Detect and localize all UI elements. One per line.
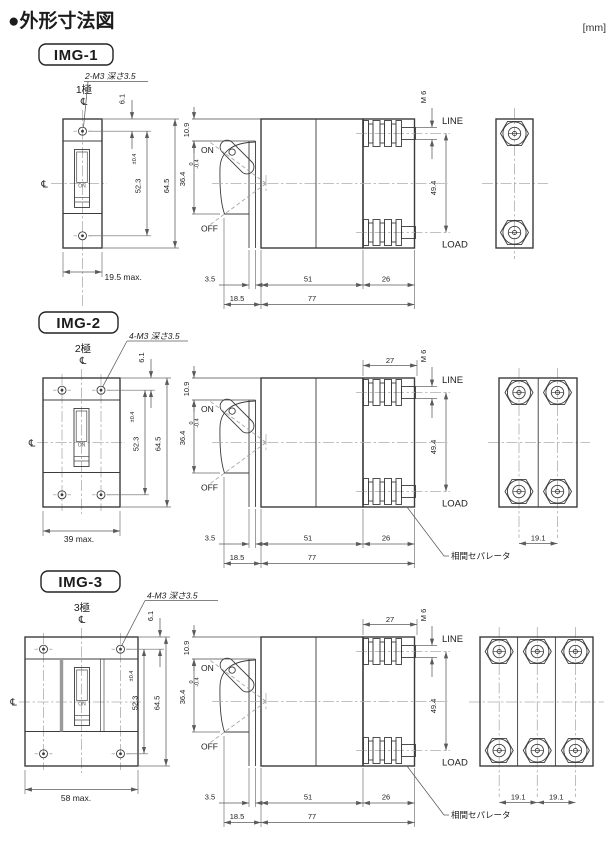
dim-escutcheon-depth: 3.5 — [205, 793, 215, 802]
front-view: ℄ ON 6.1 ±0.4 52.3 — [9, 611, 170, 803]
pole-separator-line — [60, 659, 63, 732]
line-terminal-label: LINE — [442, 634, 463, 645]
dim-window-tol-lower: -0.4 — [195, 677, 201, 686]
on-label: ON — [201, 663, 214, 673]
dim-body-depth: 51 — [304, 793, 312, 802]
centerline-symbol-left: ℄ — [40, 180, 48, 191]
dim-total-depth: 77 — [308, 553, 316, 562]
dim-hole-offset: 6.1 — [146, 611, 155, 621]
toggle-handle-icon — [75, 150, 90, 208]
dim-pitch-tolerance: ±0.4 — [130, 412, 136, 423]
dim-window-tol-lower: -0.4 — [195, 418, 201, 427]
dimension-drawing-page: ●外形寸法図 [mm] IMG-1 1極 ℄ 2-M3 深さ3.5 ℄ ON — [0, 0, 613, 851]
section-img-2: IMG-2 2極 ℄ 4-M3 深さ3.5 ℄ ON — [28, 312, 590, 568]
centerline-symbol-left: ℄ — [28, 439, 36, 450]
off-label: OFF — [201, 224, 218, 234]
section-img-1: IMG-1 1極 ℄ 2-M3 深さ3.5 ℄ ON — [39, 44, 548, 309]
dim-rim-height: 10.9 — [182, 382, 191, 397]
centerline-symbol-top: ℄ — [79, 356, 87, 367]
toggle-on-label: ON — [78, 443, 86, 449]
centerline-symbol-left: ℄ — [9, 698, 17, 709]
load-terminal-label: LOAD — [442, 240, 468, 251]
dim-front-depth: 18.5 — [230, 812, 245, 821]
dim-terminal-screw: M 6 — [419, 609, 428, 622]
thread-note: 2-M3 深さ3.5 — [84, 71, 136, 81]
end-view: 19.1 — [488, 368, 590, 544]
front-view: ℄ ON 6.1 ±0.4 52.3 64.5 39 max. — [28, 352, 171, 544]
dim-pole-pitch-2: 19.1 — [549, 793, 564, 802]
dim-hole-pitch: 52.3 — [134, 179, 143, 194]
section-img-3: IMG-3 3極 ℄ 4-M3 深さ3.5 ℄ ON — [9, 571, 604, 827]
dim-height: 64.5 — [153, 696, 162, 711]
dim-rim-height: 10.9 — [182, 641, 191, 656]
model-badge-label: IMG-3 — [58, 574, 102, 591]
drawing-canvas: ●外形寸法図 [mm] IMG-1 1極 ℄ 2-M3 深さ3.5 ℄ ON — [0, 0, 613, 851]
on-label: ON — [201, 404, 214, 414]
pole-count-label: 1極 — [76, 83, 92, 96]
dim-escutcheon-depth: 3.5 — [205, 275, 215, 284]
dim-hole-offset: 6.1 — [118, 94, 127, 104]
toggle-handle-icon — [75, 668, 90, 726]
dim-terminal-depth: 26 — [382, 275, 390, 284]
separator-note: 相間セパレータ — [451, 810, 511, 820]
line-terminal-label: LINE — [442, 116, 463, 127]
dim-window-tol-lower: -0.4 — [195, 159, 201, 168]
load-terminal-label: LOAD — [442, 499, 468, 510]
dim-pole-pitch-1: 19.1 — [511, 793, 526, 802]
dim-window-height: 36.4 — [178, 690, 187, 705]
off-label: OFF — [201, 483, 218, 493]
model-badge-label: IMG-2 — [56, 315, 100, 332]
off-label: OFF — [201, 742, 218, 752]
dim-hole-pitch: 52.3 — [132, 437, 141, 452]
side-view: 27 10.9 36.4 0 -0.4 ON OFF 3.5 51 26 18.… — [178, 609, 511, 827]
page-title: ●外形寸法図 — [8, 9, 114, 32]
dim-window-height: 36.4 — [178, 431, 187, 446]
pole-count-label: 3極 — [74, 601, 90, 614]
dim-rim-height: 10.9 — [182, 123, 191, 138]
dim-width-max: 39 max. — [64, 534, 94, 544]
separator-note: 相間セパレータ — [451, 551, 511, 561]
model-badge-label: IMG-1 — [54, 47, 98, 64]
dim-pole-pitch: 19.1 — [531, 534, 546, 543]
dim-height: 64.5 — [154, 437, 163, 452]
dim-front-depth: 18.5 — [230, 294, 245, 303]
dim-width-max: 19.5 max. — [105, 272, 142, 282]
toggle-on-label: ON — [78, 702, 86, 708]
centerline-symbol-top: ℄ — [78, 615, 86, 626]
dim-pitch-tolerance: ±0.4 — [129, 671, 135, 682]
dim-body-depth: 51 — [304, 275, 312, 284]
dim-terminal-screw: M 6 — [419, 91, 428, 104]
thread-note: 4-M3 深さ3.5 — [129, 331, 180, 341]
dim-terminal-pitch: 49.4 — [429, 181, 438, 196]
dim-terminal-pitch: 49.4 — [429, 699, 438, 714]
dim-terminal-depth: 26 — [382, 534, 390, 543]
line-terminal-label: LINE — [442, 375, 463, 386]
dim-block-width: 27 — [386, 356, 394, 365]
dim-pitch-tolerance: ±0.4 — [132, 154, 138, 165]
dim-front-depth: 18.5 — [230, 553, 245, 562]
side-view: 10.9 36.4 0 -0.4 ON OFF 3.5 51 26 18.5 7… — [178, 91, 468, 309]
dim-window-height: 36.4 — [178, 172, 187, 187]
dim-hole-offset: 6.1 — [137, 352, 146, 362]
dim-height: 64.5 — [162, 179, 171, 194]
dim-hole-pitch: 52.3 — [131, 696, 140, 711]
thread-note: 4-M3 深さ3.5 — [147, 591, 198, 601]
dim-total-depth: 77 — [308, 812, 316, 821]
toggle-on-label: ON — [78, 184, 86, 190]
page-header: ●外形寸法図 [mm] — [8, 9, 606, 34]
dim-terminal-pitch: 49.4 — [429, 440, 438, 455]
dim-body-depth: 51 — [304, 534, 312, 543]
pole-count-label: 2極 — [75, 342, 91, 355]
end-view: 19.1 19.1 — [469, 627, 604, 803]
on-label: ON — [201, 145, 214, 155]
end-view — [482, 108, 548, 259]
side-view: 27 10.9 36.4 0 -0.4 ON OFF 3.5 51 26 18.… — [178, 350, 511, 568]
dim-escutcheon-depth: 3.5 — [205, 534, 215, 543]
dim-width-max: 58 max. — [61, 793, 91, 803]
load-terminal-label: LOAD — [442, 758, 468, 769]
front-view: ℄ ON 6.1 ±0.4 52.3 64.5 19.5 max. — [40, 94, 179, 308]
dim-terminal-depth: 26 — [382, 793, 390, 802]
unit-note: [mm] — [583, 22, 606, 34]
dim-terminal-screw: M 6 — [419, 350, 428, 363]
dim-block-width: 27 — [386, 615, 394, 624]
dim-total-depth: 77 — [308, 294, 316, 303]
